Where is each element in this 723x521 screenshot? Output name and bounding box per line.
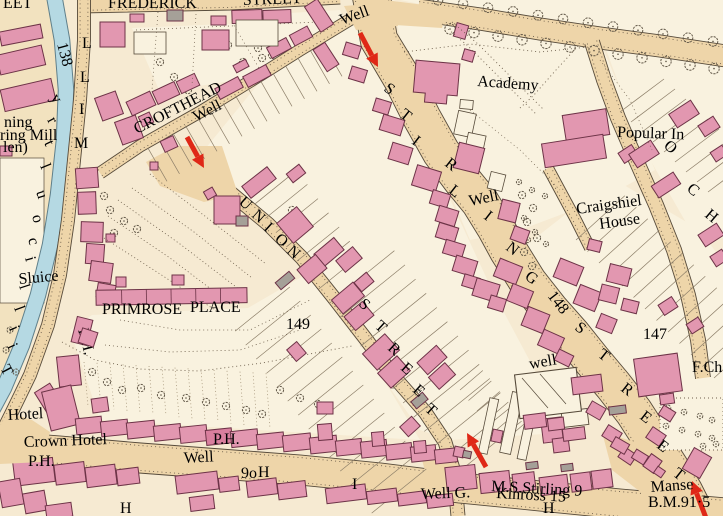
svg-text:M: M — [74, 135, 88, 152]
svg-text:EET: EET — [3, 0, 33, 12]
svg-text:B.M.91·5: B.M.91·5 — [648, 494, 710, 511]
svg-text:PLACE: PLACE — [190, 299, 241, 316]
svg-text:I: I — [79, 101, 84, 118]
svg-text:Well: Well — [183, 448, 214, 467]
svg-text:len): len) — [3, 139, 28, 156]
svg-text:Hotel: Hotel — [7, 405, 44, 424]
svg-text:L: L — [80, 69, 90, 86]
svg-text:F.Ch.: F.Ch. — [692, 359, 723, 376]
svg-text:I: I — [352, 476, 357, 493]
svg-text:9o: 9o — [241, 465, 257, 482]
svg-text:FREDERICK: FREDERICK — [108, 0, 197, 12]
svg-text:149: 149 — [286, 316, 310, 333]
svg-text:PRIMROSE: PRIMROSE — [102, 301, 182, 318]
svg-text:H: H — [258, 464, 270, 481]
svg-text:L: L — [82, 35, 92, 52]
svg-text:P.H.: P.H. — [213, 431, 240, 448]
svg-text:147: 147 — [643, 326, 667, 343]
svg-text:H: H — [543, 500, 555, 516]
svg-text:Sluice: Sluice — [18, 268, 59, 288]
svg-text:Crown Hotel: Crown Hotel — [24, 431, 108, 451]
svg-text:H: H — [120, 500, 132, 516]
svg-text:Well G.: Well G. — [421, 484, 471, 503]
svg-text:P.H.: P.H. — [28, 453, 55, 470]
svg-text:Manse: Manse — [650, 476, 694, 496]
